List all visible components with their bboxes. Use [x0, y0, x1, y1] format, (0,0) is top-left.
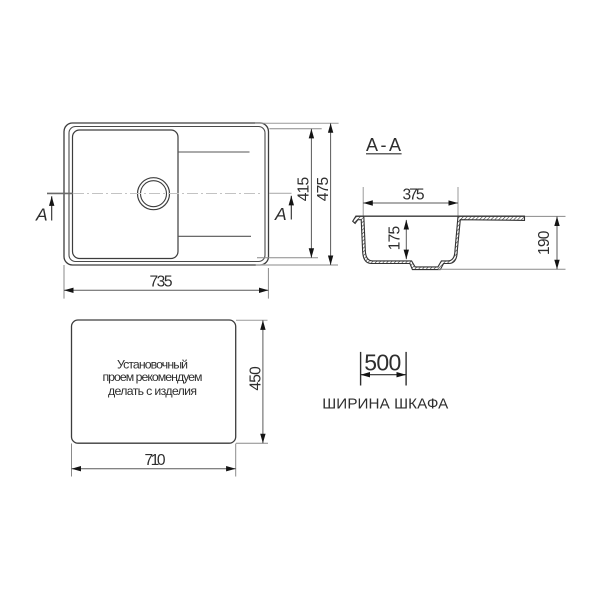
svg-text:735: 735	[150, 274, 173, 291]
svg-text:415: 415	[296, 176, 313, 201]
svg-text:190: 190	[536, 230, 553, 255]
svg-text:500: 500	[364, 350, 401, 376]
svg-text:делать с изделия: делать с изделия	[108, 384, 197, 398]
svg-text:A: A	[274, 204, 287, 224]
svg-text:A: A	[35, 205, 48, 225]
svg-text:ШИРИНА ШКАФА: ШИРИНА ШКАФА	[322, 395, 449, 412]
svg-text:450: 450	[247, 366, 264, 391]
svg-text:375: 375	[403, 187, 425, 204]
svg-text:проем рекомендуем: проем рекомендуем	[103, 370, 203, 384]
svg-text:710: 710	[145, 452, 166, 469]
svg-text:175: 175	[386, 225, 403, 250]
svg-text:475: 475	[315, 176, 332, 201]
svg-text:А-А: А-А	[366, 135, 401, 155]
